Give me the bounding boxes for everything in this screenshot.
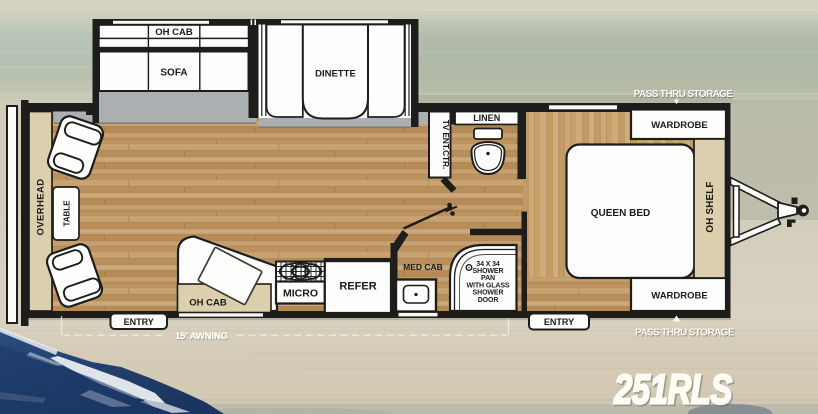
- svg-text:ENTRY: ENTRY: [124, 317, 154, 327]
- svg-text:WARDROBE: WARDROBE: [651, 120, 707, 131]
- svg-text:251RLS: 251RLS: [613, 366, 732, 413]
- svg-text:PASS THRU STORAGE: PASS THRU STORAGE: [634, 89, 734, 100]
- svg-text:ENTRY: ENTRY: [544, 317, 574, 327]
- svg-text:WITH GLASS: WITH GLASS: [467, 282, 510, 289]
- svg-text:OH SHELF: OH SHELF: [705, 181, 716, 232]
- svg-text:PAN: PAN: [481, 275, 495, 282]
- svg-text:OVERHEAD: OVERHEAD: [36, 178, 47, 235]
- svg-text:REFER: REFER: [339, 281, 376, 293]
- svg-text:LINEN: LINEN: [473, 113, 500, 123]
- svg-text:WARDROBE: WARDROBE: [651, 291, 707, 302]
- svg-text:DINETTE: DINETTE: [315, 69, 356, 80]
- svg-text:TV ENT.CTR.: TV ENT.CTR.: [441, 120, 450, 170]
- svg-text:DOOR: DOOR: [478, 297, 499, 304]
- svg-text:MICRO: MICRO: [283, 288, 318, 300]
- svg-text:SHOWER: SHOWER: [473, 290, 504, 297]
- svg-text:15' AWNING: 15' AWNING: [175, 331, 228, 342]
- svg-text:PASS THRU STORAGE: PASS THRU STORAGE: [635, 328, 735, 339]
- svg-text:SOFA: SOFA: [160, 68, 187, 79]
- svg-text:TABLE: TABLE: [63, 200, 72, 227]
- svg-text:MED CAB: MED CAB: [403, 262, 443, 272]
- svg-text:SHOWER: SHOWER: [473, 268, 504, 275]
- svg-text:34 X 34: 34 X 34: [476, 261, 500, 268]
- svg-text:OH CAB: OH CAB: [189, 298, 227, 309]
- svg-text:QUEEN BED: QUEEN BED: [591, 208, 650, 219]
- svg-text:OH CAB: OH CAB: [155, 27, 193, 38]
